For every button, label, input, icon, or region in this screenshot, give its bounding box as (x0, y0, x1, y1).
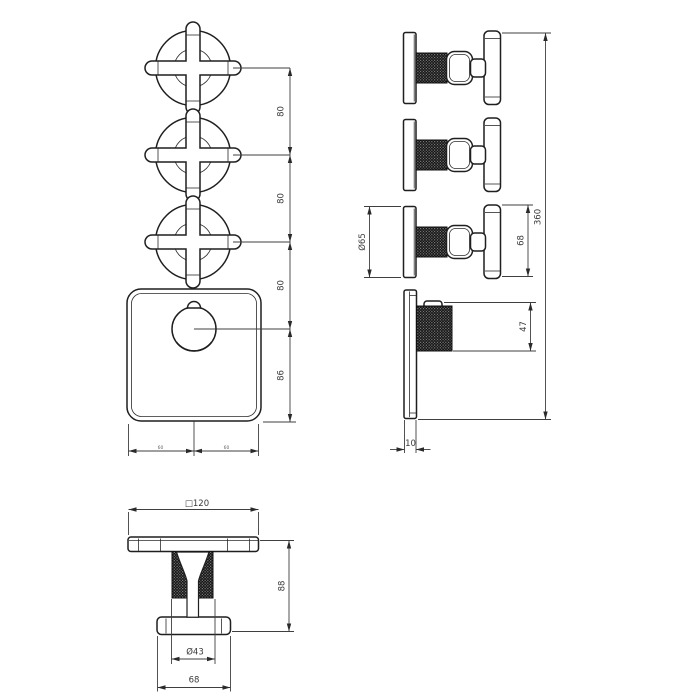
dim-label-spacing-2: 80 (277, 193, 287, 204)
wall-plate-front (127, 289, 290, 421)
dim-handle-depth: 88 (232, 541, 294, 632)
dim-arrowhead (543, 33, 547, 41)
dim-arrowhead (397, 447, 405, 451)
dim-handle-height: 68 (502, 205, 533, 277)
dim-half-widths: 60 60 (129, 422, 259, 457)
dim-label-handle-length: 68 (189, 676, 200, 686)
dim-arrowhead (288, 321, 292, 329)
dim-label-plate-size: □120 (185, 499, 209, 509)
dim-arrowhead (251, 449, 259, 453)
dim-arrowhead (543, 412, 547, 420)
dim-label-spacing-3: 80 (277, 280, 287, 291)
dim-label-handle-depth: 88 (278, 581, 288, 592)
dim-handle-diameter: Ø65 (357, 207, 401, 278)
dim-arrowhead (288, 329, 292, 337)
dim-chain-vertical: 80 80 80 86 (263, 68, 296, 422)
handle-arm-end (157, 617, 231, 635)
handle-bottom-profile (157, 552, 231, 635)
dim-arrowhead (288, 147, 292, 155)
dim-arrowhead (223, 685, 231, 689)
dim-arrowhead (172, 657, 180, 661)
dim-label-plate-thickness: 10 (405, 439, 416, 449)
dim-arrowhead (416, 447, 424, 451)
dim-arrowhead (288, 414, 292, 422)
dim-plate-thickness: 10 (390, 420, 431, 453)
plate-outer-edge (127, 289, 261, 421)
dim-label-spacing-1: 80 (277, 106, 287, 117)
dim-arrowhead (251, 507, 259, 511)
side-handle-top (404, 31, 501, 105)
dim-arrowhead (288, 242, 292, 250)
dim-plate-size: □120 (129, 499, 259, 535)
thermostat-knob-side (417, 306, 453, 351)
dim-arrowhead (287, 624, 291, 632)
dim-arrowhead (129, 449, 137, 453)
bottom-view: □120 88 (128, 499, 294, 692)
dim-arrowhead (194, 449, 202, 453)
dim-label-half-right: 60 (224, 445, 230, 451)
knob-bottom-shadow (176, 342, 211, 351)
front-view: 80 80 80 86 60 60 (127, 22, 296, 456)
side-view: Ø65 68 47 10 (357, 31, 551, 453)
dim-label-half-left: 60 (158, 445, 164, 451)
cross-handle-top (145, 22, 290, 114)
dim-label-total-height: 360 (534, 209, 544, 225)
dim-arrowhead (288, 68, 292, 76)
dim-arrowhead (528, 303, 532, 311)
wall-plate-side (404, 290, 452, 419)
technical-drawing: 80 80 80 86 60 60 Ø65 68 (0, 0, 700, 700)
dim-arrowhead (367, 207, 371, 215)
dim-knob-depth: 47 (444, 303, 536, 352)
dim-arrowhead (129, 507, 137, 511)
side-handle-middle (404, 118, 501, 192)
dim-label-knob-offset: 86 (277, 370, 287, 381)
dim-arrowhead (207, 657, 215, 661)
dim-arrowhead (186, 449, 194, 453)
wall-plate-bottom (128, 537, 259, 552)
dim-label-handle-height: 68 (517, 235, 527, 246)
knob-indicator-tab (188, 302, 201, 309)
side-handle-bottom (404, 205, 501, 279)
dim-arrowhead (526, 269, 530, 277)
dim-arrowhead (528, 343, 532, 351)
cross-handle-bottom (145, 196, 290, 288)
dim-arrowhead (288, 234, 292, 242)
dim-label-knob-depth: 47 (519, 321, 529, 332)
dim-arrowhead (367, 270, 371, 278)
dim-arrowhead (287, 541, 291, 549)
dim-arrowhead (158, 685, 166, 689)
dim-arrowhead (288, 155, 292, 163)
plate-bottom-profile (128, 537, 259, 552)
dim-label-grip-diameter: Ø43 (186, 647, 204, 658)
dim-label-handle-diameter: Ø65 (357, 233, 368, 251)
plate-inner-edge (132, 294, 257, 417)
plate-side-profile (404, 290, 417, 419)
dim-arrowhead (526, 205, 530, 213)
cross-handle-middle (145, 109, 290, 201)
dim-handle-length: 68 (158, 636, 231, 692)
